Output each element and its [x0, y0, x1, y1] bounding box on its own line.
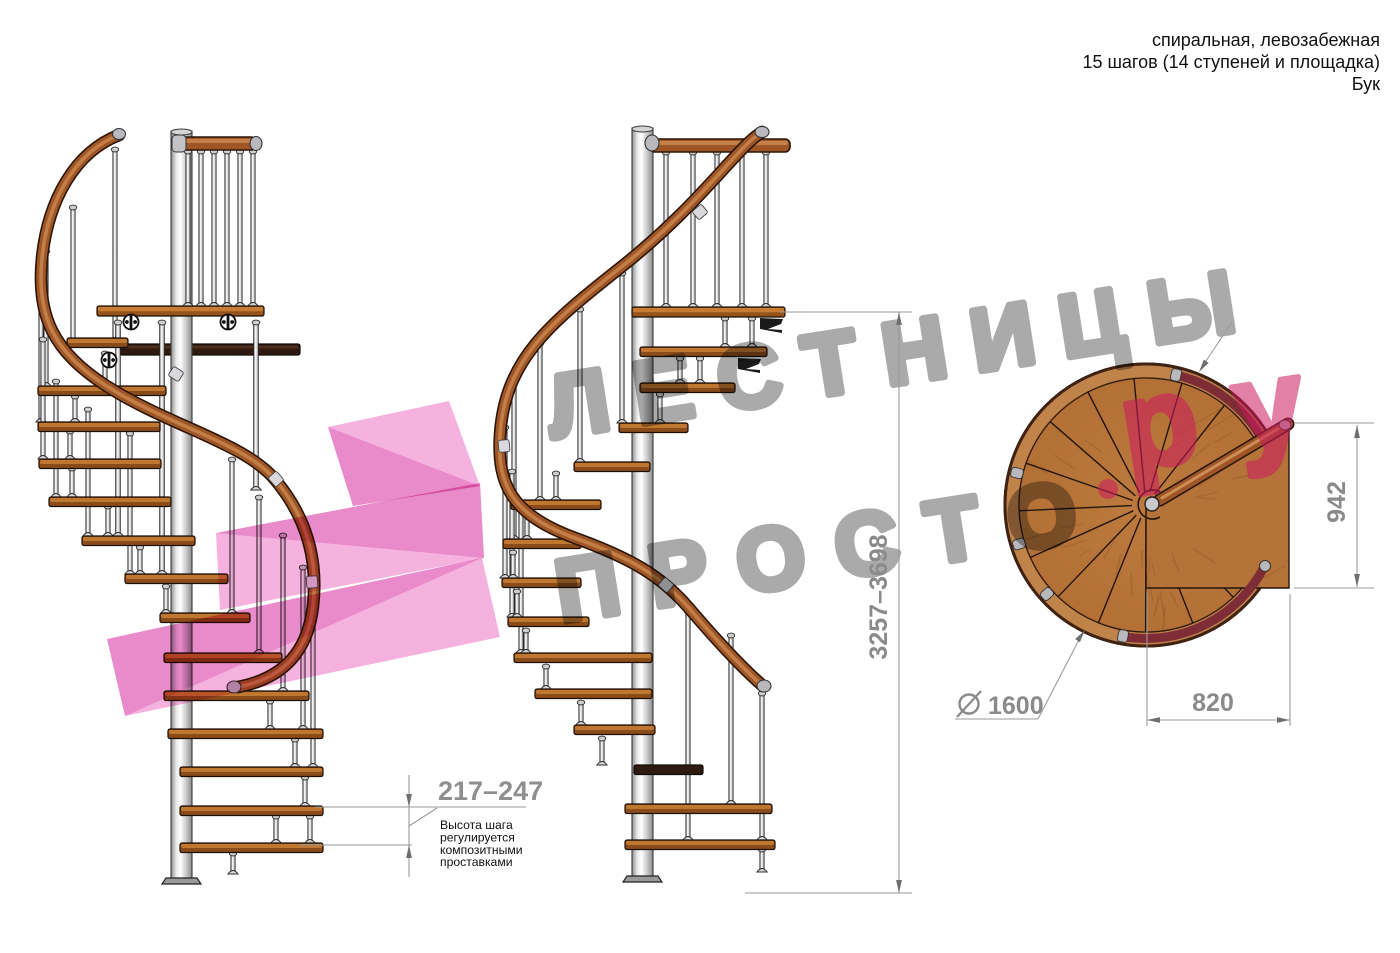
- svg-text:820: 820: [1192, 689, 1234, 717]
- svg-text:3257–3698: 3257–3698: [865, 534, 893, 659]
- svg-text:проставками: проставками: [440, 855, 513, 869]
- svg-text:15 шагов (14 ступеней и площад: 15 шагов (14 ступеней и площадка): [1082, 52, 1380, 72]
- svg-text:1600: 1600: [988, 692, 1044, 720]
- svg-text:217–247: 217–247: [438, 776, 543, 806]
- svg-text:спиральная, левозабежная: спиральная, левозабежная: [1152, 30, 1380, 50]
- svg-text:942: 942: [1323, 481, 1351, 523]
- svg-text:Бук: Бук: [1352, 74, 1380, 94]
